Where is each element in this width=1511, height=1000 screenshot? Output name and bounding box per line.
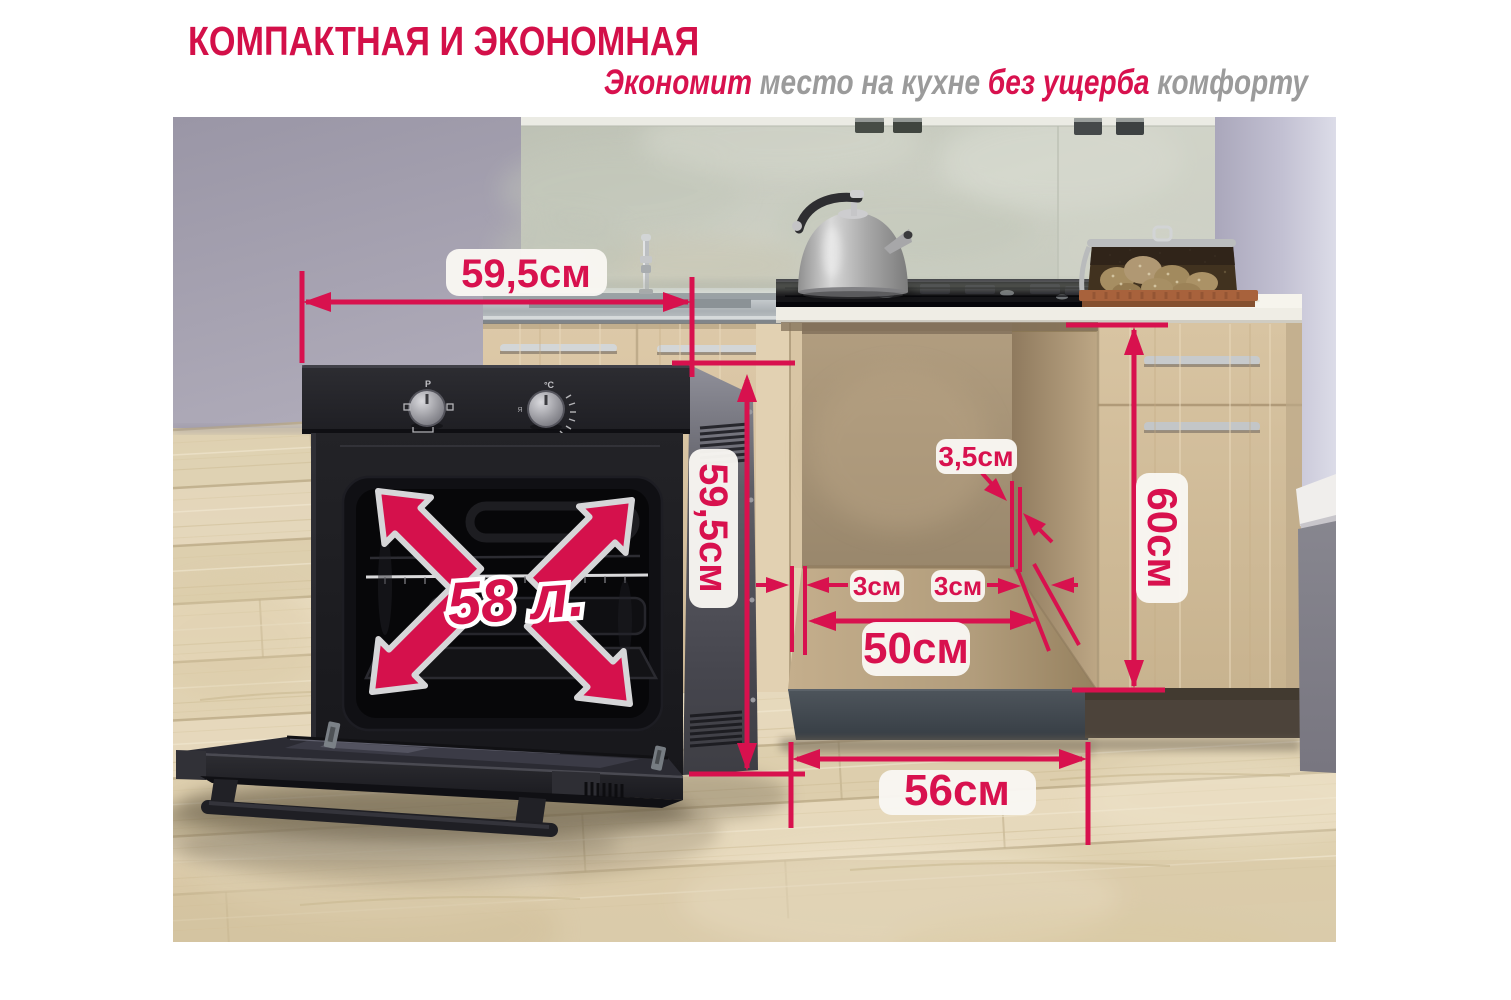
svg-text:56см: 56см bbox=[904, 766, 1010, 815]
svg-text:Экономит место на кухне без ущ: Экономит место на кухне без ущерба комфо… bbox=[604, 62, 1309, 102]
svg-text:59,5см: 59,5см bbox=[691, 463, 735, 593]
svg-text:P: P bbox=[425, 379, 431, 389]
svg-text:3см: 3см bbox=[853, 571, 901, 601]
svg-text:58 л.: 58 л. bbox=[445, 561, 587, 637]
svg-text:3см: 3см bbox=[934, 571, 982, 601]
svg-text:°C: °C bbox=[544, 380, 555, 390]
svg-text:3,5см: 3,5см bbox=[938, 441, 1013, 472]
svg-text:59,5см: 59,5см bbox=[461, 252, 591, 296]
svg-text:60см: 60см bbox=[1139, 487, 1186, 588]
svg-text:50см: 50см bbox=[863, 624, 969, 673]
svg-text:Я: Я bbox=[517, 407, 522, 414]
svg-text:КОМПАКТНАЯ И ЭКОНОМНАЯ: КОМПАКТНАЯ И ЭКОНОМНАЯ bbox=[188, 19, 699, 65]
